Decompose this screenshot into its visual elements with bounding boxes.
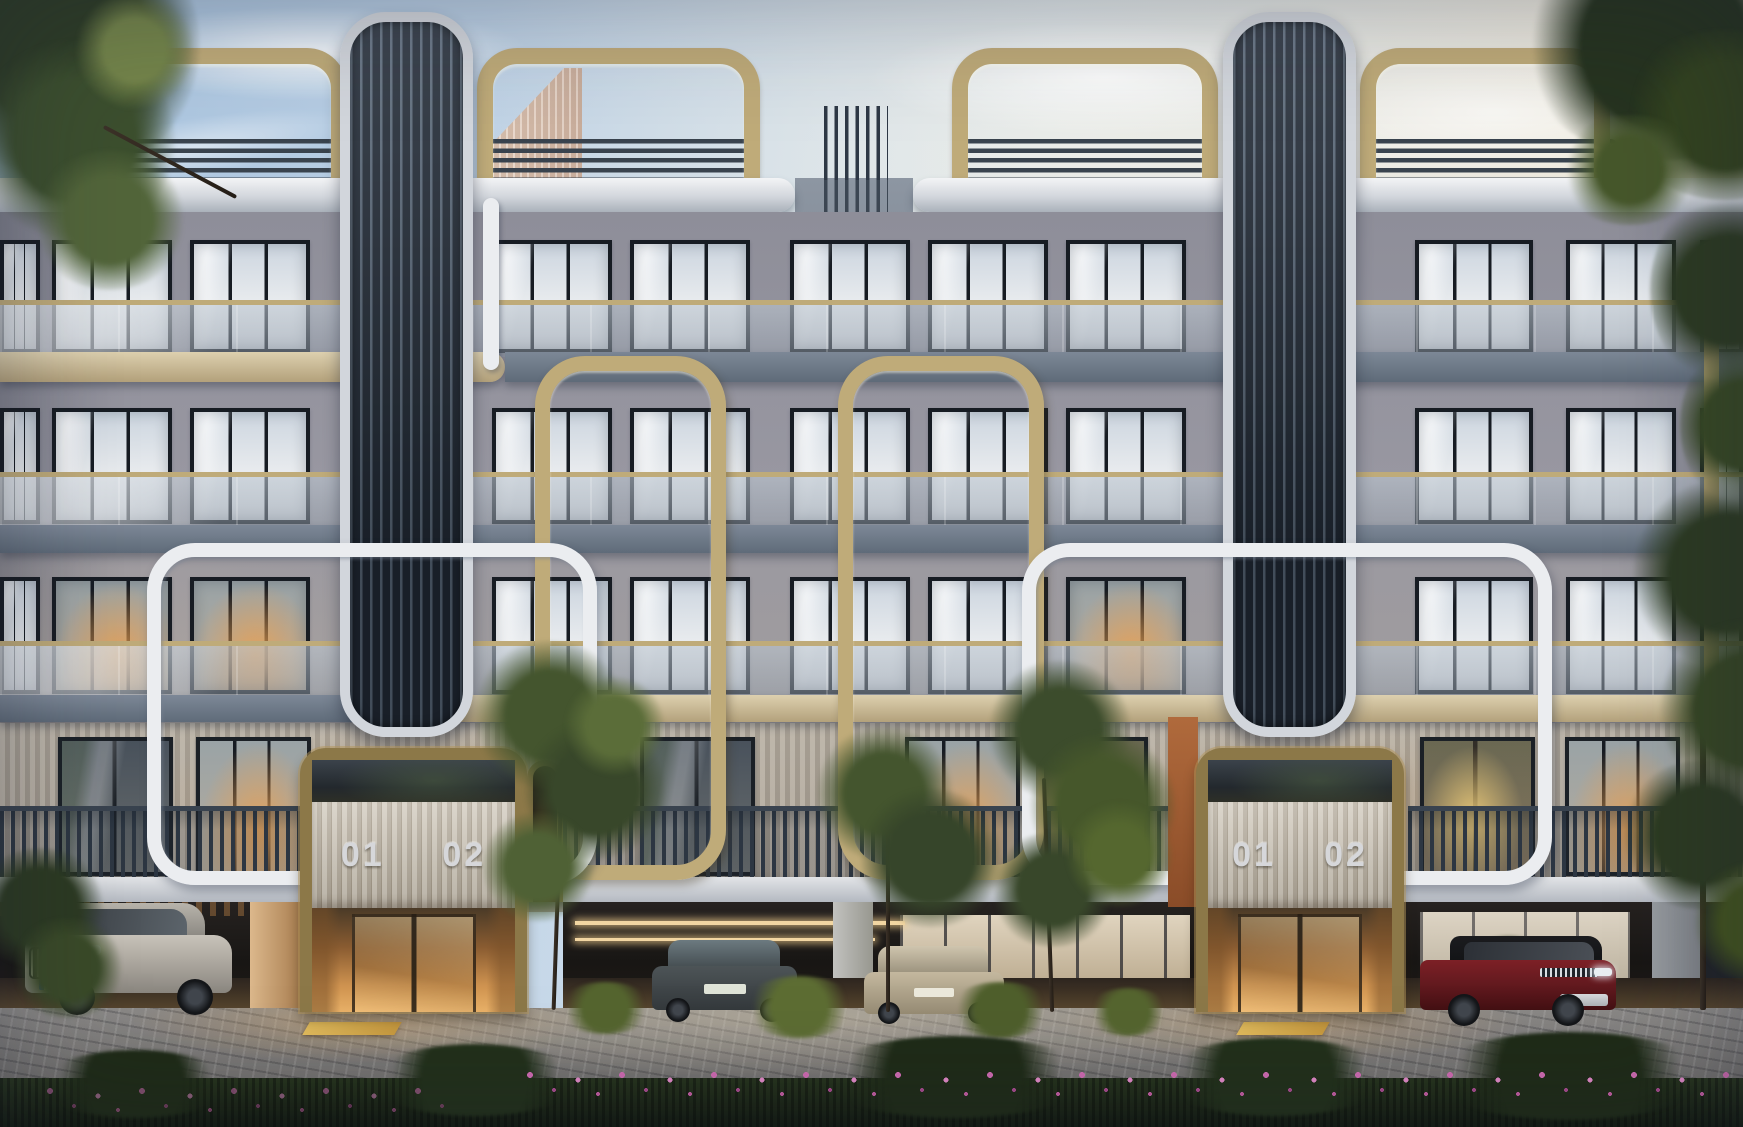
entrance-glass-door <box>1238 914 1362 1012</box>
car-wheel <box>666 998 690 1022</box>
white-tube-drop <box>483 198 499 370</box>
car-wheel <box>177 979 213 1015</box>
grass-tuft <box>948 982 1053 1038</box>
entrance-glass-door <box>352 914 476 1012</box>
entrance-canopy-panel: 01 02 <box>1208 802 1392 908</box>
entrance-doormat <box>1236 1022 1330 1035</box>
entrance-doormat <box>302 1022 402 1035</box>
license-plate <box>914 988 954 997</box>
license-plate <box>704 984 746 994</box>
grass-tuft <box>1086 988 1171 1036</box>
roof-fin-cluster <box>824 106 888 180</box>
hedge-flowers <box>40 1082 460 1114</box>
grass-tuft <box>742 976 857 1038</box>
dark-red-suv <box>1420 928 1618 1023</box>
entrance-transom <box>312 760 515 802</box>
hedge-flowers <box>520 1066 1743 1110</box>
unit-number: 02 <box>1324 836 1368 875</box>
building-exterior-scene: 01 02 01 02 <box>0 0 1743 1127</box>
car-grille <box>1540 968 1598 977</box>
unit-number: 01 <box>1232 836 1276 875</box>
entrance-lobby <box>312 908 515 1012</box>
car-wheel <box>1448 994 1480 1026</box>
car-headlight <box>1594 968 1612 976</box>
glass-balustrade <box>0 300 1743 357</box>
grass-tuft <box>558 982 653 1034</box>
entrance-transom <box>1208 760 1392 802</box>
roof-pergola-frame <box>477 48 760 192</box>
entrance-portal-right: 01 02 <box>1196 748 1404 1012</box>
garage-pier-warm <box>250 902 302 1012</box>
entrance-lobby <box>1208 908 1392 1012</box>
roof-pergola-frame <box>952 48 1218 192</box>
unit-number: 01 <box>341 836 385 875</box>
car-wheel <box>1552 994 1584 1026</box>
